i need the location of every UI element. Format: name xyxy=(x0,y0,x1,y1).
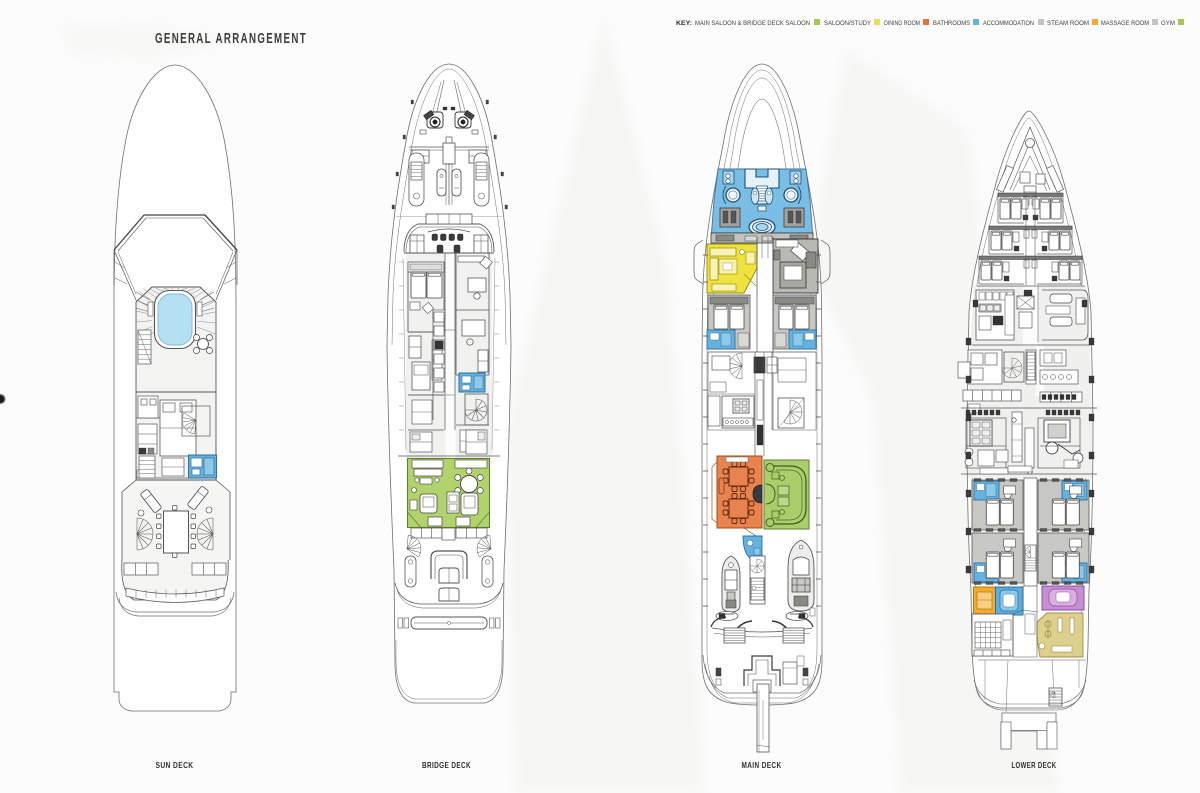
svg-text:SUN DECK: SUN DECK xyxy=(156,761,194,770)
svg-text:MAIN DECK: MAIN DECK xyxy=(742,761,782,770)
svg-text:MASSAGE ROOM: MASSAGE ROOM xyxy=(1101,20,1149,27)
svg-text:BATHROOMS: BATHROOMS xyxy=(933,20,970,27)
svg-text:GENERAL ARRANGEMENT: GENERAL ARRANGEMENT xyxy=(155,31,307,47)
svg-text:ACCOMMODATION: ACCOMMODATION xyxy=(983,20,1034,27)
svg-text:KEY:: KEY: xyxy=(676,20,692,27)
svg-text:BRIDGE DECK: BRIDGE DECK xyxy=(422,761,471,770)
svg-text:STEAM ROOM: STEAM ROOM xyxy=(1047,20,1089,27)
svg-text:DINING ROOM: DINING ROOM xyxy=(884,20,920,27)
svg-text:MAIN SALOON & BRIDGE DECK SALO: MAIN SALOON & BRIDGE DECK SALOON xyxy=(695,20,810,27)
svg-text:SALOON/STUDY: SALOON/STUDY xyxy=(824,20,871,27)
svg-text:GYM: GYM xyxy=(1161,20,1175,27)
svg-text:LOWER DECK: LOWER DECK xyxy=(1012,761,1057,770)
